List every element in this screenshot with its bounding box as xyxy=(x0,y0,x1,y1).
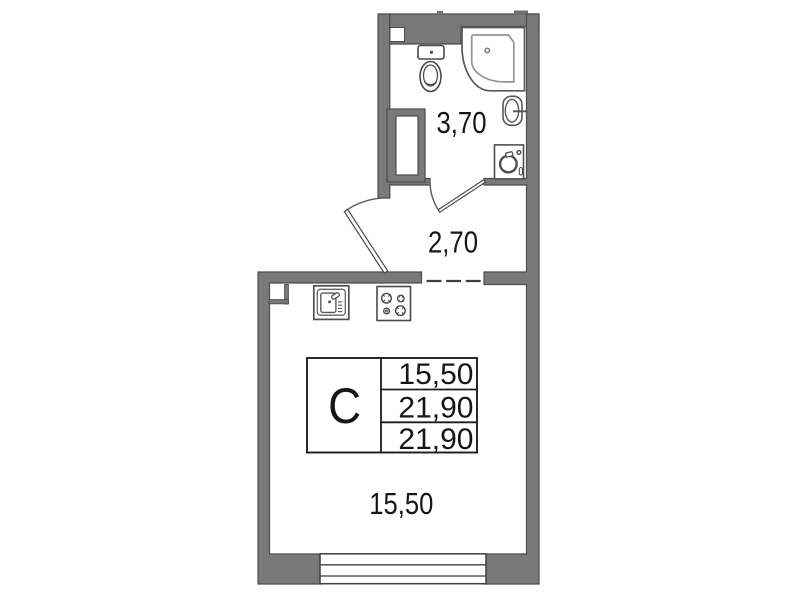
svg-text:2,70: 2,70 xyxy=(428,225,478,260)
svg-text:15,50: 15,50 xyxy=(398,358,473,391)
svg-text:3,70: 3,70 xyxy=(437,105,487,140)
svg-text:С: С xyxy=(328,378,361,434)
svg-text:21,90: 21,90 xyxy=(398,392,473,425)
svg-text:21,90: 21,90 xyxy=(398,423,473,456)
svg-text:15,50: 15,50 xyxy=(369,486,433,521)
